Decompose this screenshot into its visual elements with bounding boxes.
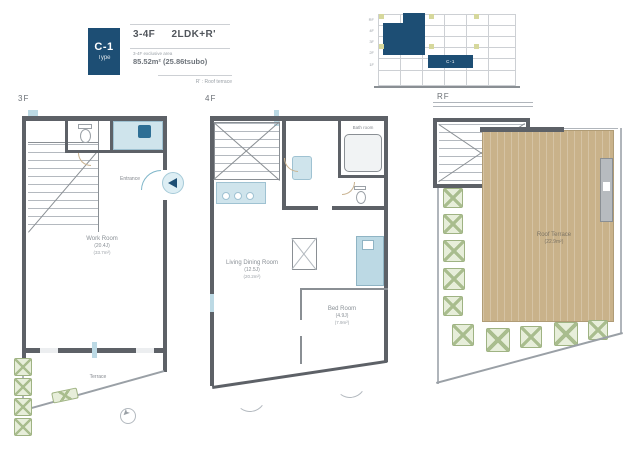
- toilet-bowl: [356, 191, 366, 204]
- keyplan-unit-highlight: [383, 23, 404, 55]
- wall: [22, 116, 26, 374]
- planter: [443, 188, 463, 208]
- type-label: Type: [88, 55, 120, 61]
- window-tick: [92, 342, 97, 358]
- header-divider: [130, 24, 230, 25]
- keyplan-marker: [474, 14, 479, 19]
- entrance-arrow-icon: [168, 178, 177, 188]
- window-tick: [210, 294, 214, 312]
- planter: [554, 322, 578, 346]
- door-arc: [284, 158, 298, 172]
- planter: [14, 398, 32, 416]
- door-gap: [318, 206, 332, 210]
- planter: [520, 326, 542, 348]
- plan-3f-label: 3F: [18, 94, 29, 104]
- floorplan-sheet: C-1 Type 3-4F 2LDK+R' 3-4F exclusive are…: [0, 0, 640, 459]
- equipment-panel: [603, 182, 610, 191]
- shower-unit: [138, 125, 151, 138]
- entrance-label: Entrance: [98, 176, 140, 182]
- plan-rf: RF Roof Terrace (22.9m²): [430, 92, 630, 437]
- parapet-line: [433, 102, 533, 103]
- area-value: 85.52m² (25.86tsubo): [133, 57, 207, 66]
- room-size-m2: (22.9m²): [518, 239, 590, 245]
- wall: [433, 118, 530, 122]
- room-size-jo: (20.4J): [47, 243, 157, 249]
- footnote-divider: [158, 75, 232, 76]
- planter: [452, 324, 474, 346]
- planter: [14, 378, 32, 396]
- plan-4f: 4F Bath room: [200, 94, 392, 444]
- room-name: Work Room: [47, 236, 157, 242]
- parapet-line: [620, 128, 622, 334]
- bathtub: [344, 134, 382, 172]
- keyplan-unit-label: C-1: [428, 59, 473, 64]
- sink-bowl: [234, 192, 242, 200]
- planter: [443, 240, 465, 262]
- keyplan-unit-bar: C-1: [428, 55, 473, 68]
- keyplan-marker: [429, 14, 434, 19]
- room-name: Bed Room: [312, 306, 372, 312]
- planter: [443, 214, 463, 234]
- entrance-door-arc: [141, 170, 161, 190]
- type-code: C-1: [88, 41, 120, 53]
- plan-rf-label: RF: [437, 92, 450, 102]
- partition: [300, 290, 302, 320]
- wall: [384, 116, 388, 362]
- room-size-jo: (12.5J): [220, 267, 284, 273]
- parapet-line: [564, 128, 618, 129]
- room-size-m2: (20.2m²): [220, 274, 284, 279]
- keyplan-floor-label: RF: [365, 17, 374, 22]
- keyplan-marker: [379, 44, 384, 49]
- header: C-1 Type 3-4F 2LDK+R' 3-4F exclusive are…: [0, 0, 300, 95]
- partition: [300, 288, 388, 290]
- keyplan-floor-label: 1F: [365, 62, 374, 67]
- room-size-jo: (4.9J): [312, 313, 372, 319]
- unit-layout: 2LDK+R': [172, 29, 216, 40]
- keyplan-marker: [379, 14, 384, 19]
- unit-floors: 3-4F: [133, 29, 155, 40]
- plan-4f-label: 4F: [205, 94, 216, 104]
- wall: [480, 127, 564, 132]
- toilet-bowl: [80, 129, 91, 143]
- keyplan-ground-line: [374, 86, 520, 88]
- terrace-label: Terrace: [78, 374, 118, 380]
- area-note: 3-4F exclusive area: [133, 51, 172, 56]
- room-label-living-dining: Living Dining Room (12.5J) (20.2m²): [220, 260, 284, 279]
- planter: [443, 296, 463, 316]
- type-badge: C-1 Type: [88, 28, 120, 75]
- wall: [338, 175, 388, 178]
- key-plan: C-1 RF 4F 3F 2F 1F: [374, 6, 520, 94]
- room-label-roof-terrace: Roof Terrace (22.9m²): [518, 232, 590, 245]
- bathroom-label: Bath room: [340, 125, 386, 130]
- keyplan-unit-highlight: [403, 13, 425, 55]
- door-arc: [342, 182, 355, 195]
- wall: [282, 206, 388, 210]
- room-label-bed-room: Bed Room (4.9J) (7.9m²): [312, 306, 372, 325]
- toilet-tank: [354, 186, 366, 190]
- shaft-box: [362, 240, 374, 250]
- sink-bowl: [246, 192, 254, 200]
- keyplan-floor-label: 4F: [365, 28, 374, 33]
- planter: [51, 387, 79, 403]
- keyplan-marker: [429, 44, 434, 49]
- footnote: R' : Roof terrace: [150, 79, 232, 85]
- unit-title: 3-4F 2LDK+R': [133, 29, 216, 41]
- room-name: Living Dining Room: [220, 260, 284, 266]
- wall: [163, 200, 167, 372]
- partition: [300, 336, 302, 364]
- wall: [65, 121, 68, 150]
- wall: [210, 116, 388, 121]
- keyplan-grid-line: [378, 70, 516, 71]
- sink-bowl: [222, 192, 230, 200]
- room-size-m2: (33.7m²): [47, 250, 157, 255]
- parapet-line: [437, 188, 439, 384]
- planter: [14, 358, 32, 376]
- roof-deck: [482, 130, 614, 322]
- header-divider: [130, 48, 230, 49]
- keyplan-floor-label: 3F: [365, 39, 374, 44]
- window-gap: [136, 348, 154, 353]
- room-name: Roof Terrace: [518, 232, 590, 238]
- keyplan-grid-line: [444, 14, 445, 86]
- planter: [486, 328, 510, 352]
- keyplan-grid-line: [466, 14, 467, 86]
- planter: [14, 418, 32, 436]
- window-gap: [40, 348, 58, 353]
- keyplan-marker: [474, 44, 479, 49]
- plan-3f: 3F Entrance Work Room (2: [14, 94, 190, 439]
- planter: [443, 268, 465, 290]
- room-label-work-room: Work Room (20.4J) (33.7m²): [47, 236, 157, 255]
- wall: [433, 118, 437, 188]
- wall: [163, 116, 167, 170]
- parapet-line: [433, 106, 533, 107]
- room-size-m2: (7.9m²): [312, 320, 372, 325]
- keyplan-grid-line: [488, 14, 489, 86]
- keyplan-floor-label: 2F: [365, 50, 374, 55]
